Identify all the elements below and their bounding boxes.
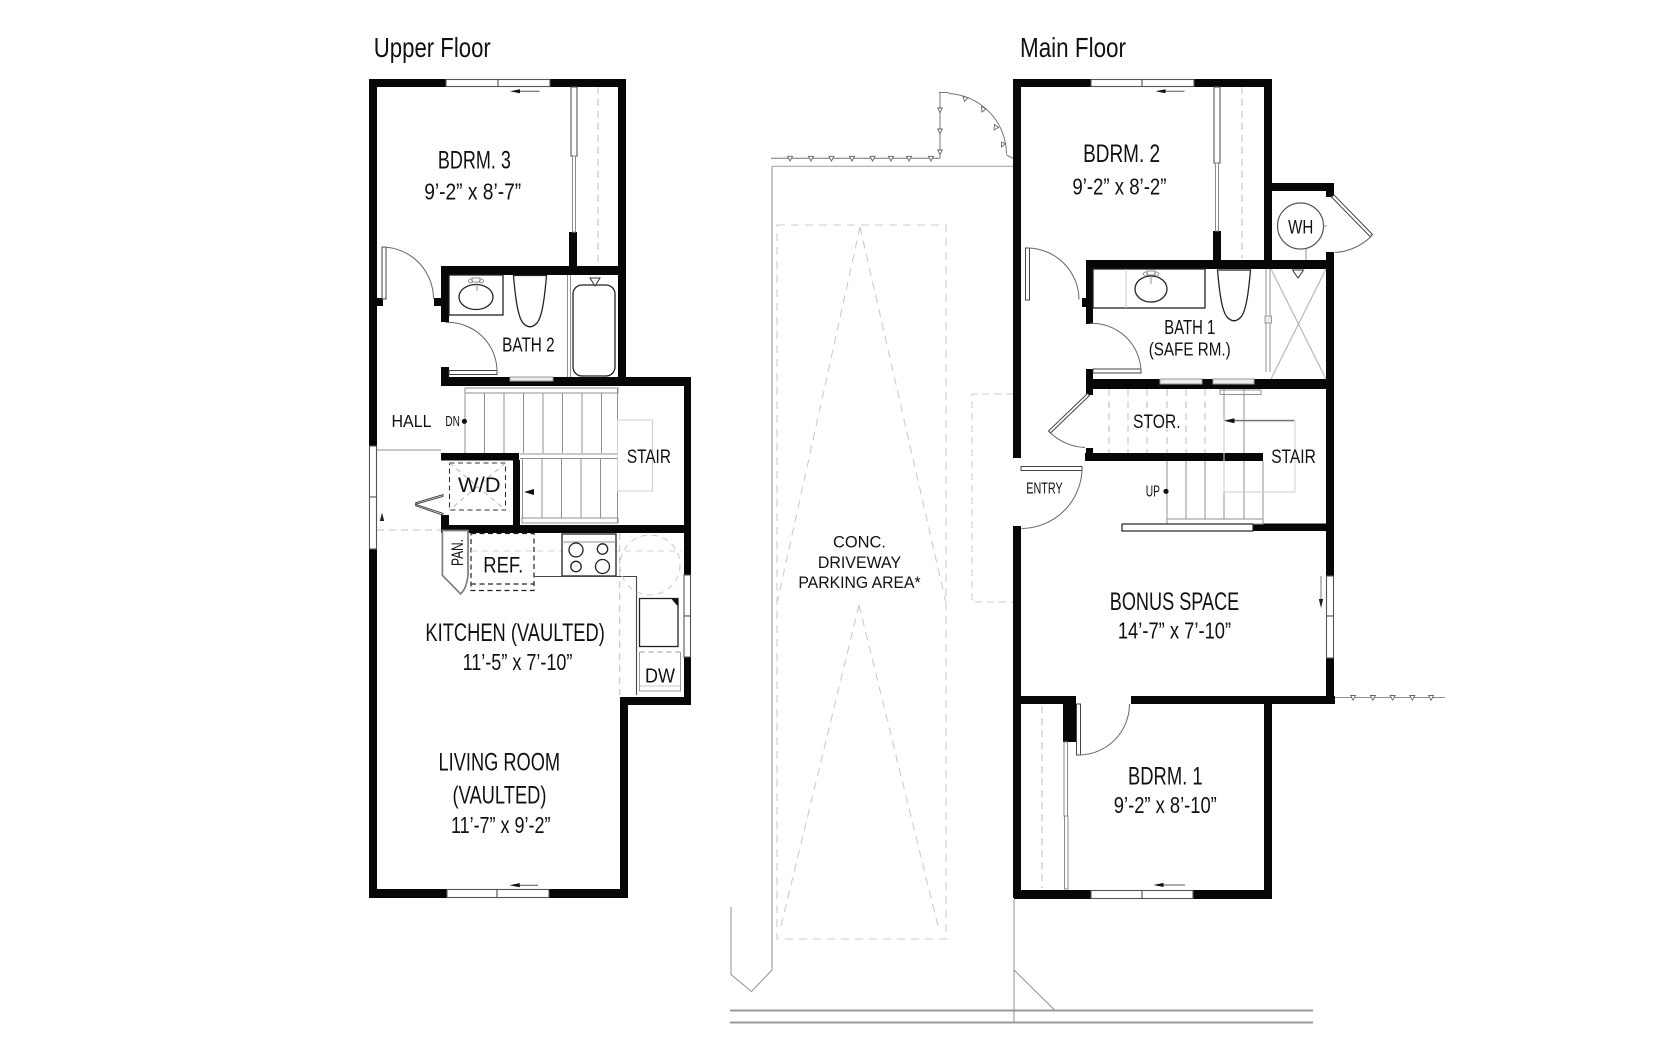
- svg-text:9’-2” x 8’-10”: 9’-2” x 8’-10”: [1114, 792, 1217, 818]
- svg-text:KITCHEN (VAULTED): KITCHEN (VAULTED): [425, 619, 604, 647]
- svg-text:PARKING AREA*: PARKING AREA*: [798, 574, 921, 592]
- svg-text:(VAULTED): (VAULTED): [453, 782, 547, 810]
- svg-text:STAIR: STAIR: [627, 446, 671, 468]
- svg-text:STOR.: STOR.: [1133, 411, 1181, 433]
- svg-text:PAN.: PAN.: [448, 539, 467, 566]
- svg-text:Upper Floor: Upper Floor: [374, 32, 491, 63]
- svg-text:DRIVEWAY: DRIVEWAY: [818, 554, 901, 572]
- svg-text:BONUS SPACE: BONUS SPACE: [1110, 588, 1240, 616]
- svg-text:STAIR: STAIR: [1271, 446, 1316, 468]
- svg-text:HALL: HALL: [392, 411, 432, 431]
- svg-text:(SAFE RM.): (SAFE RM.): [1149, 339, 1231, 360]
- svg-text:BDRM. 1: BDRM. 1: [1128, 763, 1203, 791]
- svg-text:BATH 2: BATH 2: [502, 333, 555, 356]
- svg-text:11’-7” x 9’-2”: 11’-7” x 9’-2”: [451, 812, 551, 838]
- svg-text:BDRM. 3: BDRM. 3: [438, 146, 511, 174]
- svg-text:DN: DN: [445, 414, 460, 430]
- svg-text:W/D: W/D: [458, 474, 501, 497]
- svg-text:REF.: REF.: [483, 552, 523, 577]
- svg-text:BDRM. 2: BDRM. 2: [1083, 140, 1160, 168]
- svg-text:9’-2” x 8’-7”: 9’-2” x 8’-7”: [424, 179, 521, 205]
- svg-text:14’-7” x 7’-10”: 14’-7” x 7’-10”: [1118, 618, 1231, 644]
- svg-text:LIVING ROOM: LIVING ROOM: [439, 749, 561, 777]
- svg-text:ENTRY: ENTRY: [1026, 480, 1063, 497]
- svg-text:CONC.: CONC.: [833, 534, 886, 552]
- svg-text:BATH 1: BATH 1: [1164, 316, 1215, 339]
- svg-text:Main Floor: Main Floor: [1020, 32, 1126, 63]
- svg-text:11’-5” x 7’-10”: 11’-5” x 7’-10”: [463, 649, 573, 675]
- svg-text:DW: DW: [645, 666, 675, 688]
- svg-text:9’-2” x 8’-2”: 9’-2” x 8’-2”: [1072, 174, 1166, 200]
- svg-text:UP: UP: [1146, 483, 1160, 500]
- svg-text:WH: WH: [1288, 217, 1313, 238]
